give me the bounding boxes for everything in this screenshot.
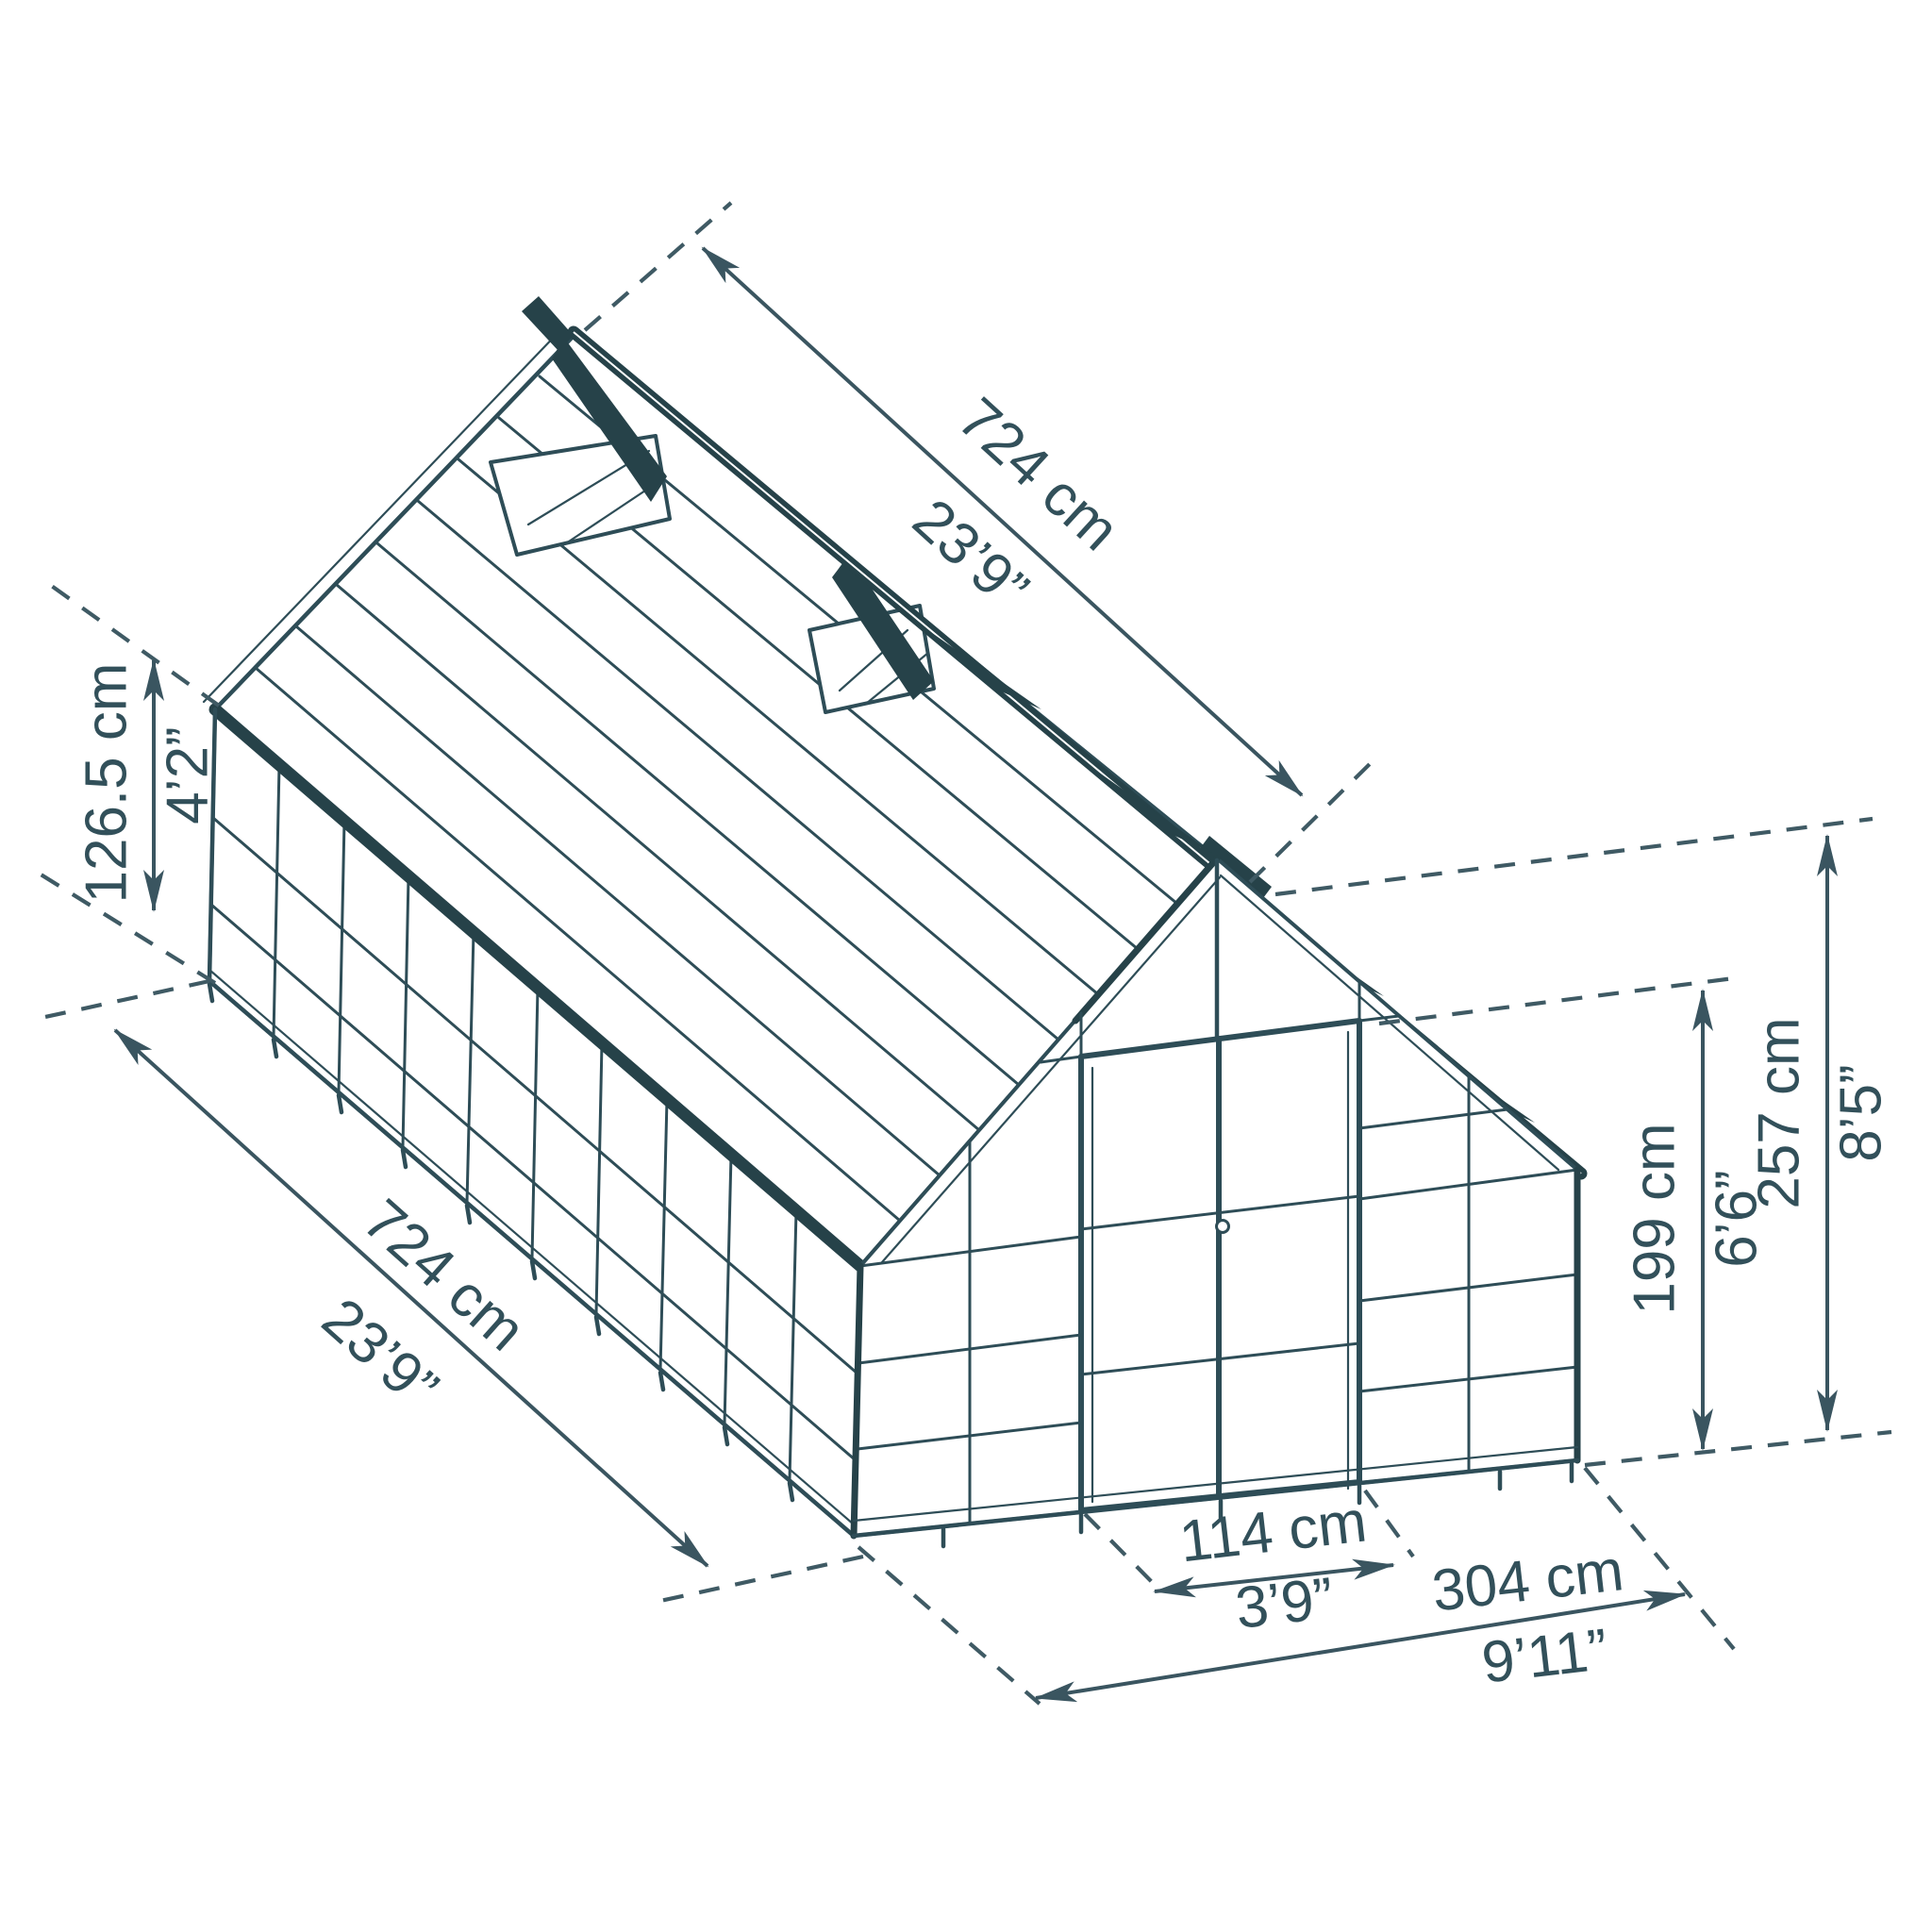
extension-line <box>1365 1491 1413 1557</box>
door-knob <box>1217 1221 1229 1233</box>
dimension-label-imperial: 23’9” <box>309 1286 450 1421</box>
dimension-door-width: 114 cm 3’9” <box>1085 1489 1413 1641</box>
diagram-canvas: 724 cm 23’9” 126.5 cm 4’2” 724 cm 23’9” … <box>0 0 1932 1932</box>
double-doors <box>1081 1021 1359 1510</box>
extension-line <box>45 981 209 1017</box>
extension-line <box>1585 1432 1891 1465</box>
dimension-label-imperial: 9’11” <box>1478 1617 1610 1696</box>
dimension-label-imperial: 23’9” <box>901 487 1041 623</box>
dimension-label-imperial: 3’9” <box>1232 1566 1337 1641</box>
dimension-label-imperial: 4’2” <box>155 726 220 824</box>
dimension-label-imperial: 8’5” <box>1828 1064 1893 1161</box>
extension-line <box>660 1557 863 1601</box>
extension-line <box>858 1547 1040 1704</box>
dimension-label-metric: 114 cm <box>1176 1489 1370 1574</box>
extension-line <box>1085 1514 1157 1587</box>
extension-line <box>1275 819 1873 894</box>
dimension-label-metric: 304 cm <box>1429 1538 1627 1624</box>
extension-line <box>585 203 731 330</box>
extension-line <box>1250 755 1379 882</box>
dimension-label-metric: 199 cm <box>1622 1123 1687 1314</box>
dimension-eave-to-ridge: 126.5 cm 4’2” <box>38 577 220 983</box>
dimension-label-imperial: 6’6” <box>1704 1170 1769 1267</box>
dimension-label-metric: 126.5 cm <box>74 662 139 903</box>
greenhouse-dimension-diagram: 724 cm 23’9” 126.5 cm 4’2” 724 cm 23’9” … <box>0 0 1932 1932</box>
extension-line <box>1379 978 1734 1024</box>
